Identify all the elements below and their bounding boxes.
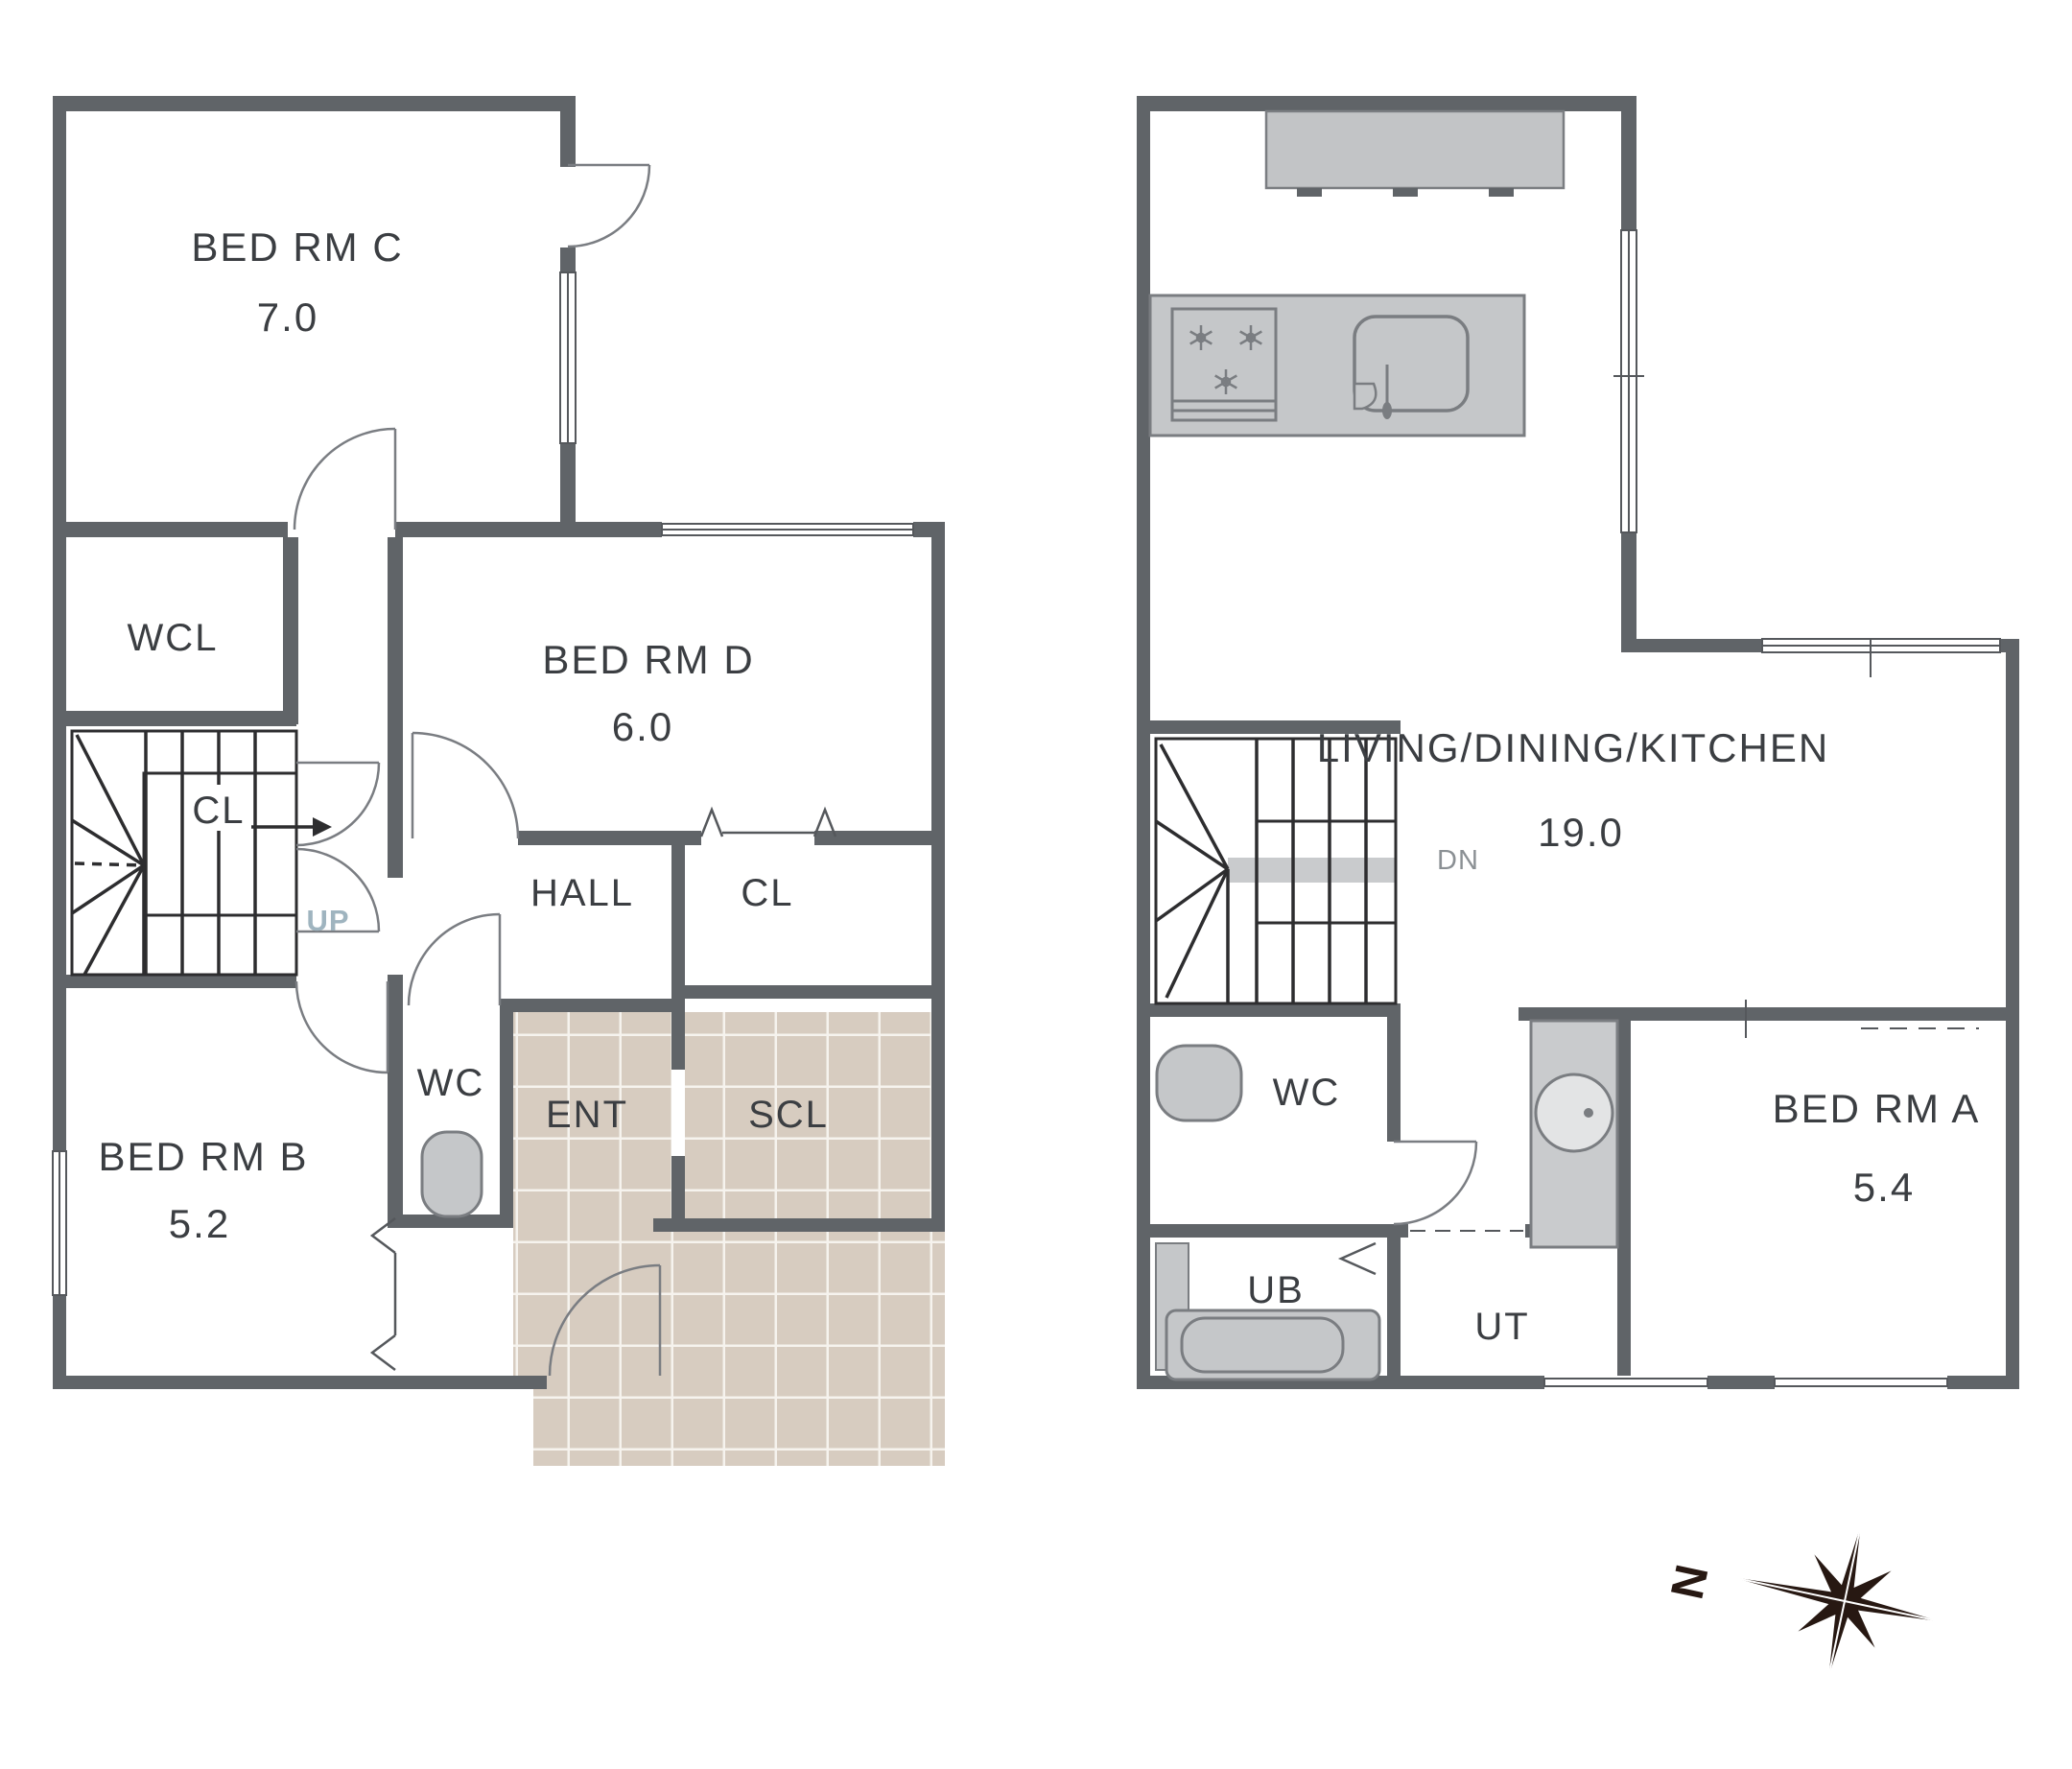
compass-rose-icon: N xyxy=(1652,1489,1956,1697)
kitchen-cabinet xyxy=(1266,111,1564,197)
room-label-closet: CL xyxy=(741,872,793,914)
stairs-dn-label: DN xyxy=(1437,845,1479,876)
room-label-bed-rm-d: BED RM D xyxy=(542,637,754,682)
room-area-bed-rm-b: 5.2 xyxy=(169,1201,230,1246)
room-area-bed-rm-d: 6.0 xyxy=(612,704,673,749)
room-label-ent: ENT xyxy=(546,1094,628,1136)
washbasin-icon xyxy=(1531,1021,1617,1247)
room-label-ut: UT xyxy=(1474,1306,1529,1348)
toilet-icon-1f xyxy=(422,1132,482,1216)
entry-tile-floor xyxy=(513,1012,945,1466)
room-label-bed-rm-b: BED RM B xyxy=(98,1134,308,1179)
room-label-stair-closet: CL xyxy=(192,790,245,832)
compass-north-label: N xyxy=(1662,1561,1719,1604)
floor-plan-page: BED RM C 7.0 WCL CL UP BED RM D 6.0 HALL… xyxy=(0,0,2072,1769)
floor-plan-drawing: BED RM C 7.0 WCL CL UP BED RM D 6.0 HALL… xyxy=(0,0,2072,1769)
toilet-icon-2f xyxy=(1157,1046,1241,1120)
room-label-hall: HALL xyxy=(530,872,634,914)
room-area-bed-rm-c: 7.0 xyxy=(257,295,318,340)
stair-rail xyxy=(1228,858,1396,883)
room-label-scl: SCL xyxy=(748,1094,829,1136)
staircase-2f xyxy=(1156,739,1396,1003)
bathtub-icon xyxy=(1166,1310,1379,1380)
room-label-wc-1f: WC xyxy=(417,1062,485,1104)
room-label-bed-rm-c: BED RM C xyxy=(191,224,403,270)
first-floor-plan: BED RM C 7.0 WCL CL UP BED RM D 6.0 HALL… xyxy=(53,96,945,1466)
room-label-bed-rm-a: BED RM A xyxy=(1773,1086,1981,1131)
room-area-ldk: 19.0 xyxy=(1538,810,1624,855)
room-label-ldk: LIVING/DINING/KITCHEN xyxy=(1317,725,1829,770)
room-area-bed-rm-a: 5.4 xyxy=(1853,1165,1915,1210)
second-floor-plan: LIVING/DINING/KITCHEN 19.0 DN WC UB UT B… xyxy=(1137,96,2019,1389)
room-label-ub: UB xyxy=(1247,1269,1305,1311)
room-label-wcl: WCL xyxy=(128,617,219,659)
kitchen-counter xyxy=(1150,295,1524,436)
bathroom-fixtures xyxy=(1156,1243,1379,1380)
room-label-wc-2f: WC xyxy=(1273,1072,1341,1114)
stair-arrow-icon xyxy=(313,817,332,837)
staircase-1f xyxy=(72,731,379,975)
stairs-up-label: UP xyxy=(306,904,349,937)
